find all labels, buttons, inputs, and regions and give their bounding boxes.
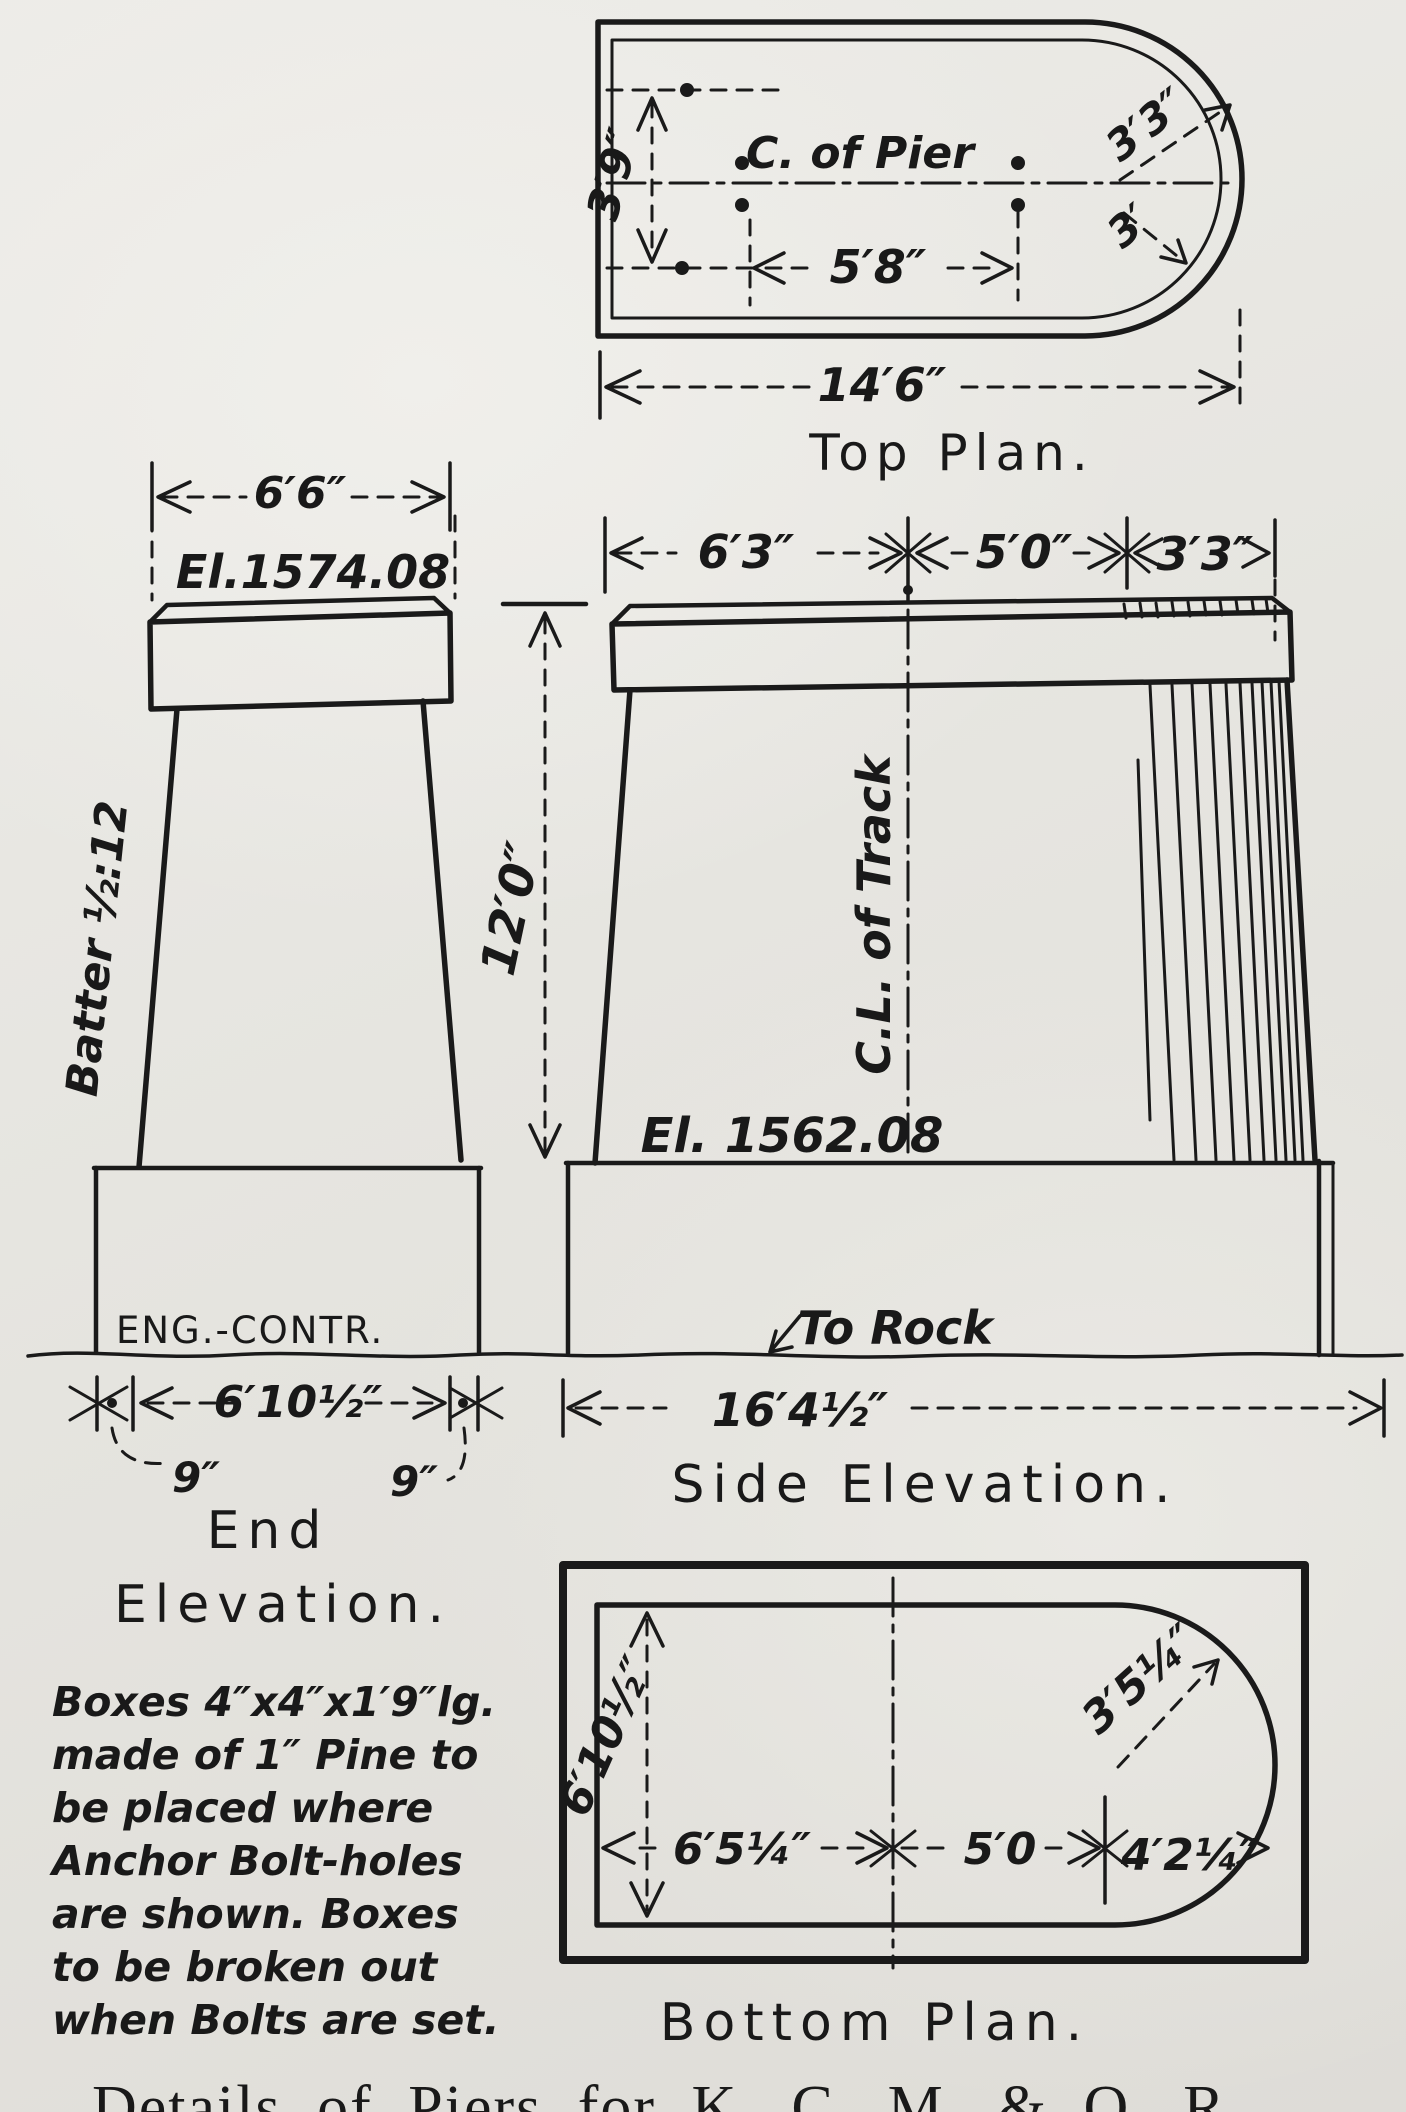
dim-6ft3-label: 6′3″ [698, 525, 795, 579]
dim-5ft8-label: 5′8″ [830, 240, 927, 294]
end-elevation-view: 6′6″ El.1574.08 Batter ½:12 ENG.-CONTR. [57, 463, 502, 1635]
note-line-7: when Bolts are set. [52, 1996, 499, 2044]
top-plan-view: 3′9″ 5′8″ C. of Pier 3′3″ 3′ [577, 22, 1242, 482]
side-elevation-title: Side Elevation. [671, 1455, 1178, 1515]
note-line-3: be placed where [52, 1784, 433, 1832]
dim-3ft3-label: 3′3″ [1157, 527, 1254, 581]
end-shaft-left-edge [139, 709, 177, 1167]
dim-5ft0-label: 5′0″ [976, 525, 1073, 579]
top-plan-title: Top Plan. [808, 424, 1095, 482]
to-rock-callout: To Rock [770, 1301, 995, 1355]
side-cap [612, 585, 1292, 690]
dim-radius-3ft-label: 3′ [1097, 194, 1159, 257]
dim-5ft8: 5′8″ [750, 212, 1018, 305]
dim-bottom-radius: 3′5¼″ [1072, 1614, 1218, 1767]
dim-3ft9: 3′9″ [577, 98, 666, 262]
dim-4ft2quarter-label: 4′2¼″ [1120, 1830, 1259, 1881]
note-line-4: Anchor Bolt-holes [49, 1837, 463, 1885]
end-shaft-right-edge [423, 701, 461, 1160]
dim-radius-3ft: 3′ [1097, 194, 1186, 263]
dim-3ft9-label: 3′9″ [577, 123, 650, 226]
pier-drawing: 3′9″ 5′8″ C. of Pier 3′3″ 3′ [0, 0, 1406, 2112]
elevation-1562-label: El. 1562.08 [641, 1108, 944, 1164]
drawing-sheet: 3′9″ 5′8″ C. of Pier 3′3″ 3′ [0, 0, 1406, 2112]
dim-6ft10half: 6′10½″ 9″ 9″ [70, 1377, 502, 1506]
cl-of-track-label: C.L. of Track [847, 753, 901, 1075]
note-line-1: Boxes 4″x4″x1′9″lg. [52, 1678, 496, 1726]
note-line-6: to be broken out [52, 1943, 439, 1991]
elevation-1574-label: El.1574.08 [176, 545, 450, 599]
dim-12ft0: 12′0″ [470, 604, 586, 1157]
dim-radius-3ft3-label: 3′3″ [1096, 78, 1196, 171]
nose-curve-lines [1138, 681, 1303, 1160]
dim-6ft6-label: 6′6″ [254, 468, 347, 519]
dim-16ft4half-label: 16′4½″ [712, 1383, 889, 1437]
end-elevation-title-2: Elevation. [114, 1575, 452, 1635]
dim-5ft0-bottom-label: 5′0 [964, 1824, 1037, 1875]
bottom-plan-view: 6′10½″ 6′5¼″ 5′0 4′2¼″ 3′5¼″ Bottom Plan… [549, 1565, 1305, 2053]
dim-16ft4half: 16′4½″ [563, 1380, 1384, 1437]
note-line-5: are shown. Boxes [52, 1890, 459, 1938]
offset-9in-left-label: 9″ [172, 1453, 220, 1502]
batter-label: Batter ½:12 [57, 798, 139, 1098]
offset-9in-right-label: 9″ [390, 1457, 438, 1506]
dim-3ft5quarter-label: 3′5¼″ [1072, 1614, 1209, 1744]
end-elevation-title-1: End [207, 1501, 330, 1561]
center-of-pier-label: C. of Pier [746, 128, 976, 179]
end-cap [150, 598, 451, 709]
note-line-2: made of 1″ Pine to [52, 1731, 478, 1779]
dim-6ft10half-label: 6′10½″ [214, 1377, 383, 1428]
to-rock-label: To Rock [797, 1301, 995, 1355]
ground-line [28, 1353, 1402, 1357]
bottom-plan-title: Bottom Plan. [660, 1993, 1090, 2053]
side-elevation-view: 6′3″ 5′0″ 3′3″ [470, 518, 1384, 1515]
eng-contr-label: ENG.-CONTR. [116, 1309, 384, 1352]
dim-radius-3ft3: 3′3″ [1096, 78, 1230, 180]
dim-6ft5quarter-label: 6′5¼″ [673, 1824, 811, 1875]
sheet-caption: Details of Piers for K. C. M. & O. R [92, 2074, 1227, 2112]
dim-12ft0-label: 12′0″ [470, 837, 553, 981]
notes-block: Boxes 4″x4″x1′9″lg. made of 1″ Pine to b… [49, 1678, 499, 2044]
dim-bottom-string: 6′5¼″ 5′0 4′2¼″ [603, 1797, 1268, 1903]
dim-14ft6-label: 14′6″ [818, 358, 947, 412]
side-shaft-left-edge [595, 690, 630, 1163]
